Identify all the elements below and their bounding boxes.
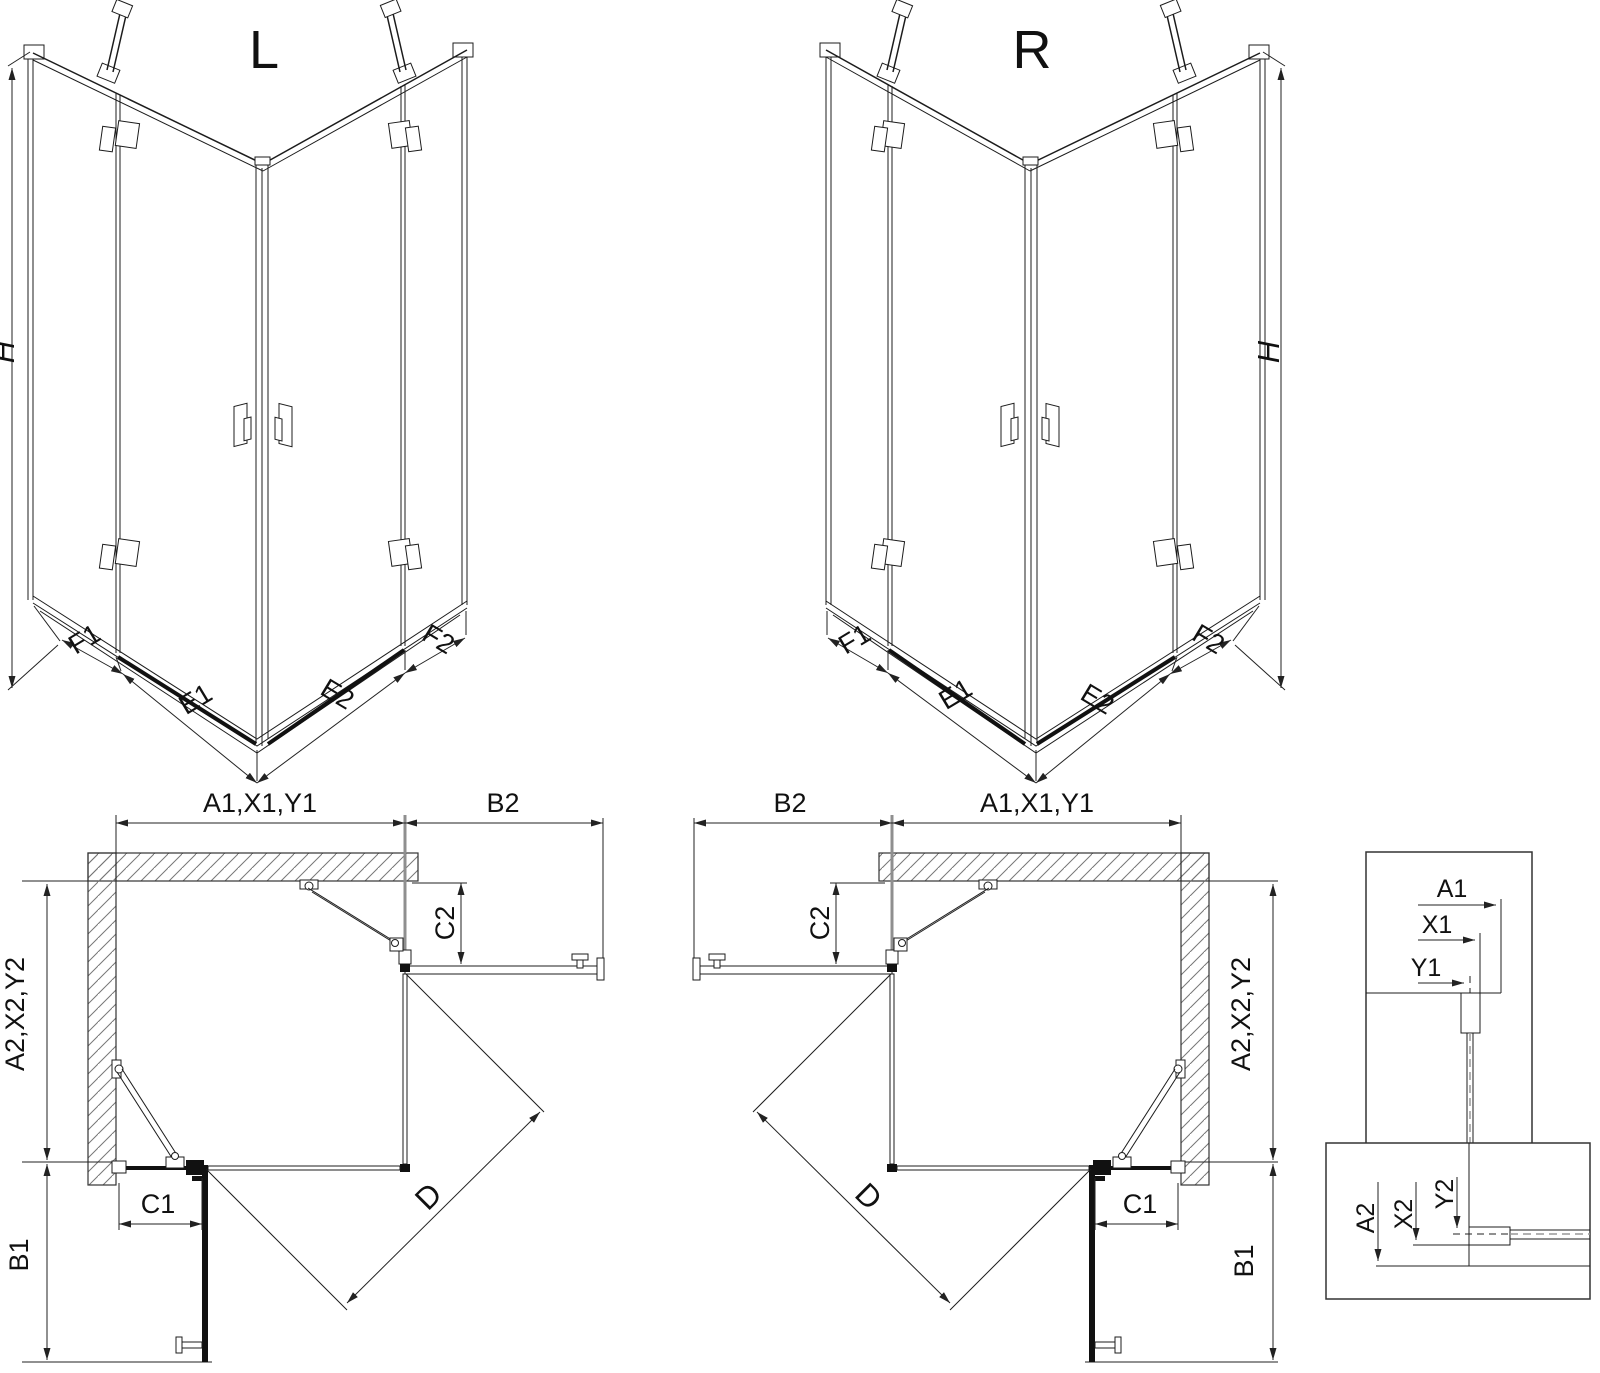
glass-holder-profile [1461, 993, 1480, 1033]
wall-top [88, 853, 418, 881]
dim-label-y2: Y2 [1431, 1179, 1459, 1210]
dim-label-a2x2y2: A2,X2,Y2 [1226, 957, 1256, 1071]
dim-label-b2: B2 [773, 788, 806, 818]
door-swing-45 [753, 974, 891, 1112]
corner-cap-icon [1023, 157, 1038, 165]
hinge-icon [400, 964, 410, 972]
corner-connector [887, 1164, 897, 1172]
wall-right [1181, 853, 1209, 1185]
hinge-icon [99, 121, 421, 570]
wall-bracket [1171, 1161, 1185, 1173]
hinge-icon [886, 950, 898, 964]
dim-label-a1x1y1: A1,X1,Y1 [203, 788, 317, 818]
dim-label-c1: C1 [1123, 1189, 1158, 1219]
dim-label-c1: C1 [141, 1189, 176, 1219]
iso-view-right: R [820, 0, 1286, 783]
door-handle-icon [1001, 403, 1059, 446]
support-bar-icon [112, 880, 403, 1168]
dim-label-y1: Y1 [1411, 954, 1442, 982]
door-closed-right [890, 974, 894, 1164]
hinge-icon [399, 950, 411, 964]
dim-label-a2x2y2: A2,X2,Y2 [0, 957, 30, 1071]
wall-profile-cap-right [453, 43, 473, 57]
dim-label-d: D [848, 1176, 889, 1217]
dim-label-f1: F1 [833, 618, 875, 660]
hinge-icon [186, 1160, 204, 1175]
dim-label-x2: X2 [1390, 1199, 1418, 1230]
dim-label-a2: A2 [1352, 1203, 1380, 1234]
door-swing-45 [206, 1169, 347, 1310]
open-door-right [693, 954, 892, 980]
door-closed-bottom [208, 1166, 400, 1170]
hinge-icon [887, 964, 897, 972]
open-door-bottom [1092, 1165, 1121, 1362]
dim-label-f1: F1 [63, 618, 105, 660]
glass-holder-profile [1469, 1227, 1510, 1245]
door-swing-45 [406, 974, 544, 1112]
dim-label-x1: X1 [1422, 911, 1453, 939]
wall-left [88, 853, 116, 1185]
iso-right-title: R [1013, 20, 1052, 80]
plan-view-right: B2 A1,X1,Y1 C2 A2,X2,Y2 B1 [693, 788, 1278, 1362]
dim-label-a1x1y1: A1,X1,Y1 [980, 788, 1094, 818]
technical-drawing-page: L [0, 0, 1600, 1373]
shower-enclosure-diagram: L [0, 0, 1600, 1373]
door-closed-right [403, 974, 407, 1164]
door-swing-45 [950, 1169, 1091, 1310]
dim-height-left: H [0, 52, 58, 690]
dim-label-d: D [408, 1176, 449, 1217]
detail-box-glass-top: A1 X1 Y1 [1366, 852, 1532, 1155]
corner-cap-icon [255, 157, 270, 165]
door-closed-bottom [897, 1166, 1089, 1170]
support-bar-icon [894, 880, 1185, 1168]
dim-label-h: H [1251, 340, 1286, 363]
dim-label-c2: C2 [805, 906, 835, 941]
hinge-icon [1093, 1160, 1111, 1175]
dim-label-a1: A1 [1437, 875, 1468, 903]
corner-connector [400, 1164, 410, 1172]
hinge-icon [871, 121, 1193, 570]
wall-profile-cap-left [820, 43, 840, 57]
dim-label-b2: B2 [486, 788, 519, 818]
dim-label-b1: B1 [4, 1238, 34, 1271]
iso-left-title: L [249, 20, 279, 80]
open-door-bottom [176, 1165, 205, 1362]
wall-bracket [112, 1161, 126, 1173]
dim-label-h: H [0, 340, 21, 363]
door-handle-icon [234, 403, 292, 446]
open-door-right [405, 954, 604, 980]
dim-label-c2: C2 [430, 906, 460, 941]
detail-box-glass-bottom: A2 X2 Y2 [1326, 1143, 1590, 1299]
dim-label-f2: F2 [417, 618, 459, 660]
dim-label-b1: B1 [1229, 1244, 1259, 1277]
dim-label-f2: F2 [1187, 618, 1229, 660]
iso-view-left: L [0, 0, 473, 783]
wall-top [879, 853, 1209, 881]
plan-view-left: A1,X1,Y1 B2 C2 A2,X2,Y2 B1 [0, 788, 604, 1362]
